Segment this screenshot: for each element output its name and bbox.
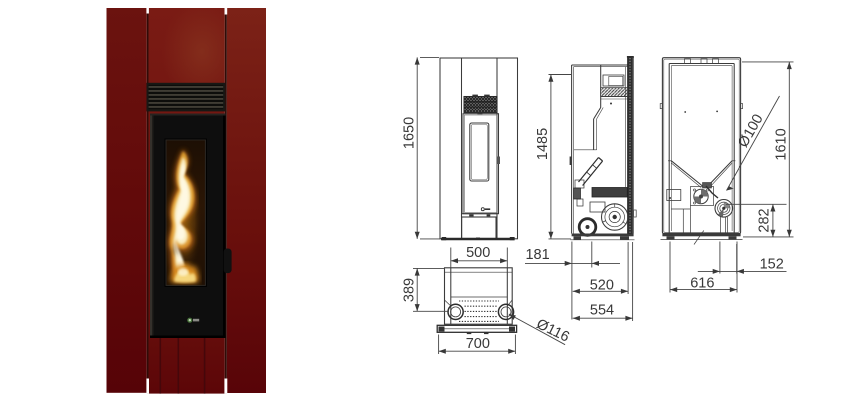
svg-text:1485: 1485 [535, 128, 551, 160]
svg-text:554: 554 [590, 303, 614, 319]
svg-text:1610: 1610 [774, 128, 790, 160]
svg-text:181: 181 [525, 247, 549, 263]
svg-text:1650: 1650 [402, 117, 418, 149]
svg-text:Ø116: Ø116 [534, 316, 572, 345]
svg-text:282: 282 [756, 208, 772, 232]
svg-text:Ø100: Ø100 [735, 112, 766, 151]
svg-text:520: 520 [590, 277, 614, 293]
svg-text:616: 616 [690, 276, 714, 292]
svg-text:152: 152 [760, 257, 784, 273]
svg-text:700: 700 [466, 336, 490, 352]
svg-text:389: 389 [401, 278, 417, 302]
svg-text:500: 500 [466, 245, 490, 261]
